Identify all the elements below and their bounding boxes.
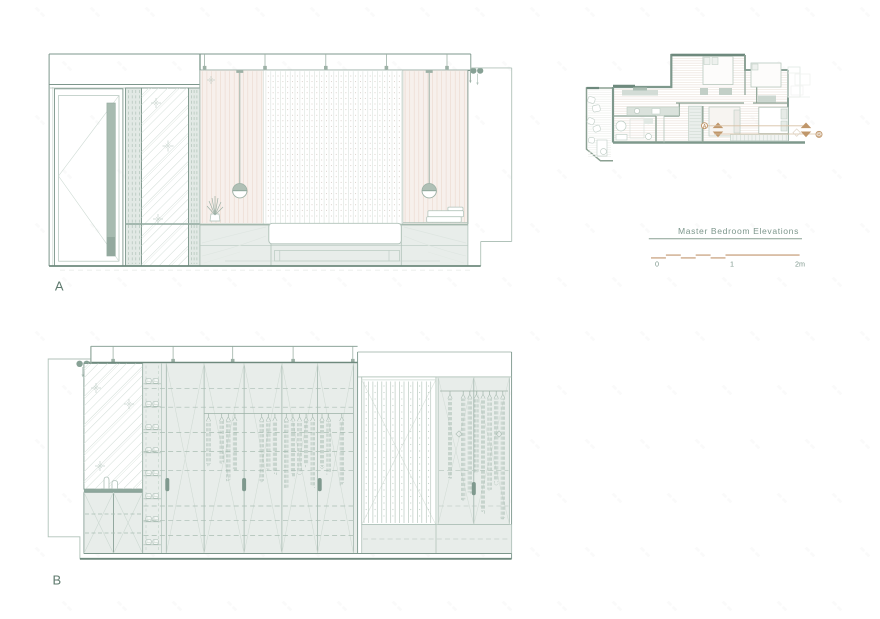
svg-text:A: A	[703, 124, 707, 130]
svg-text:Master Bedroom Elevations: Master Bedroom Elevations	[678, 226, 799, 236]
svg-text:B: B	[53, 573, 62, 588]
svg-text:2m: 2m	[795, 260, 805, 269]
svg-text:A: A	[55, 279, 64, 294]
svg-text:0: 0	[655, 260, 659, 269]
svg-text:B: B	[817, 133, 821, 139]
svg-text:1: 1	[730, 260, 734, 269]
